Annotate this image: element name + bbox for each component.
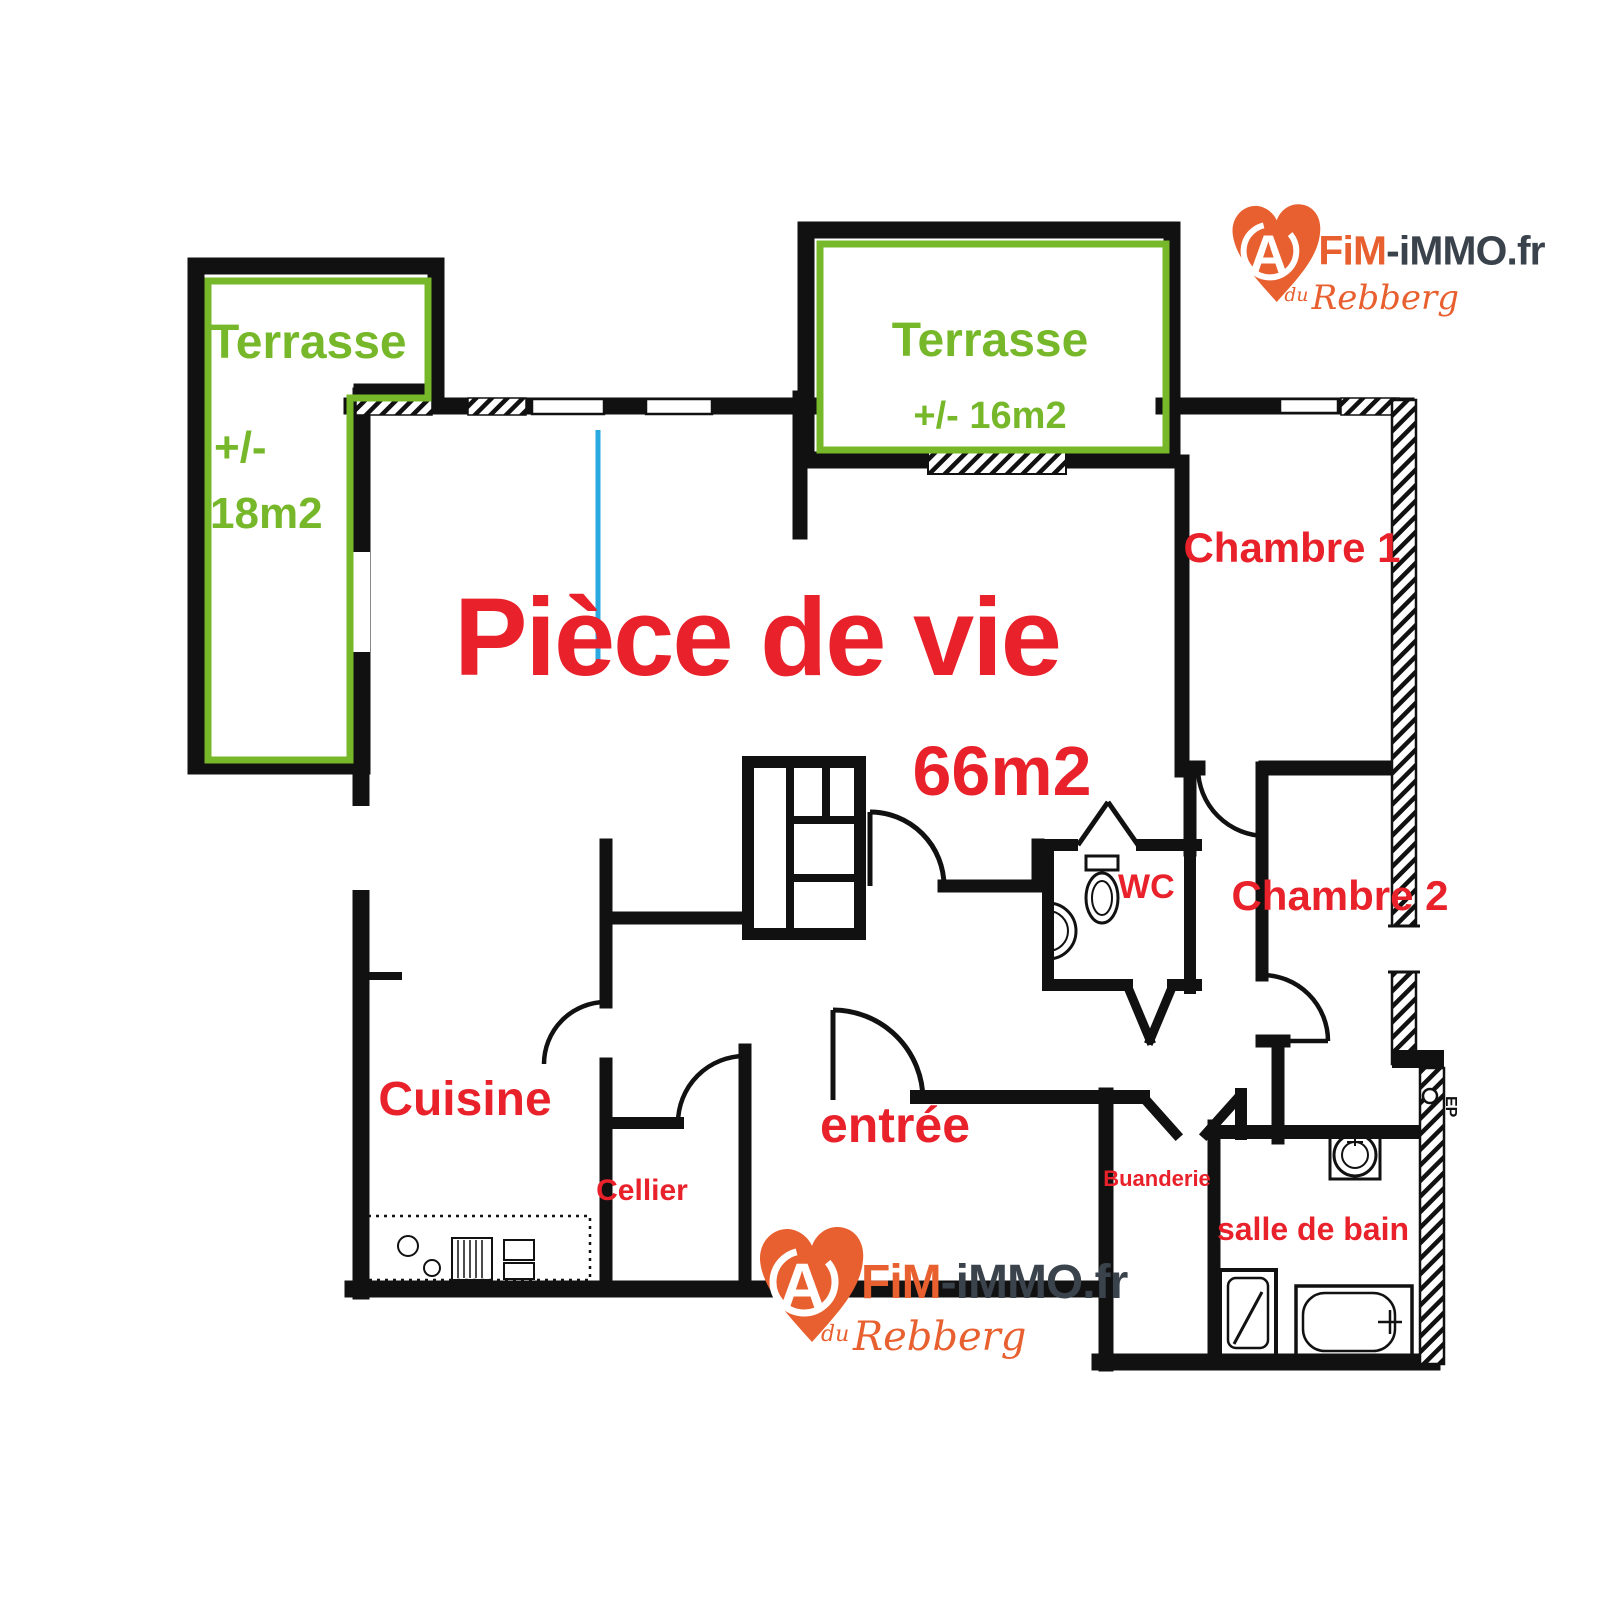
logo-tagline-name: Rebberg — [852, 1314, 1026, 1360]
terrace1-label: Terrasse — [210, 316, 407, 369]
terrace1-area: 18m2 — [210, 489, 323, 538]
terrace2-label: Terrasse — [892, 314, 1089, 367]
living-area: 66m2 — [912, 732, 1091, 810]
logo-tagline-du: du — [1284, 285, 1308, 306]
terrace1-approx: +/- — [214, 423, 267, 472]
bedroom2-label: Chambre 2 — [1231, 872, 1448, 919]
bathroom-label: salle de bain — [1217, 1211, 1409, 1247]
laundry-label: Buanderie — [1103, 1166, 1211, 1191]
ep-label: EP — [1442, 1096, 1459, 1118]
logo-brand: FiM-iMMO.fr — [861, 1256, 1128, 1309]
living-label: Pièce de vie — [454, 576, 1060, 699]
floor-plan-drawing: EP Terrasse +/- 18m2 Terrasse +/- 16m2 P… — [0, 0, 1600, 1600]
closet-block — [748, 762, 860, 934]
kitchen-label: Cuisine — [378, 1073, 551, 1126]
logo-tagline-name: Rebberg — [1311, 278, 1459, 318]
logo-tagline-du: du — [821, 1322, 849, 1347]
entry-label: entrée — [820, 1097, 970, 1153]
hatched-wall-right-lower — [1420, 1068, 1444, 1364]
pantry-label: Cellier — [596, 1174, 688, 1207]
logo-brand: FiM-iMMO.fr — [1318, 228, 1545, 274]
floor-plan-page: EP Terrasse +/- 18m2 Terrasse +/- 16m2 P… — [0, 0, 1600, 1600]
wc-label: WC — [1118, 868, 1175, 906]
bedroom1-label: Chambre 1 — [1183, 524, 1400, 571]
logo-heart-letter: A — [779, 1250, 825, 1322]
logo-heart-letter: A — [1249, 224, 1288, 285]
terrace2-area: +/- 16m2 — [913, 395, 1066, 437]
